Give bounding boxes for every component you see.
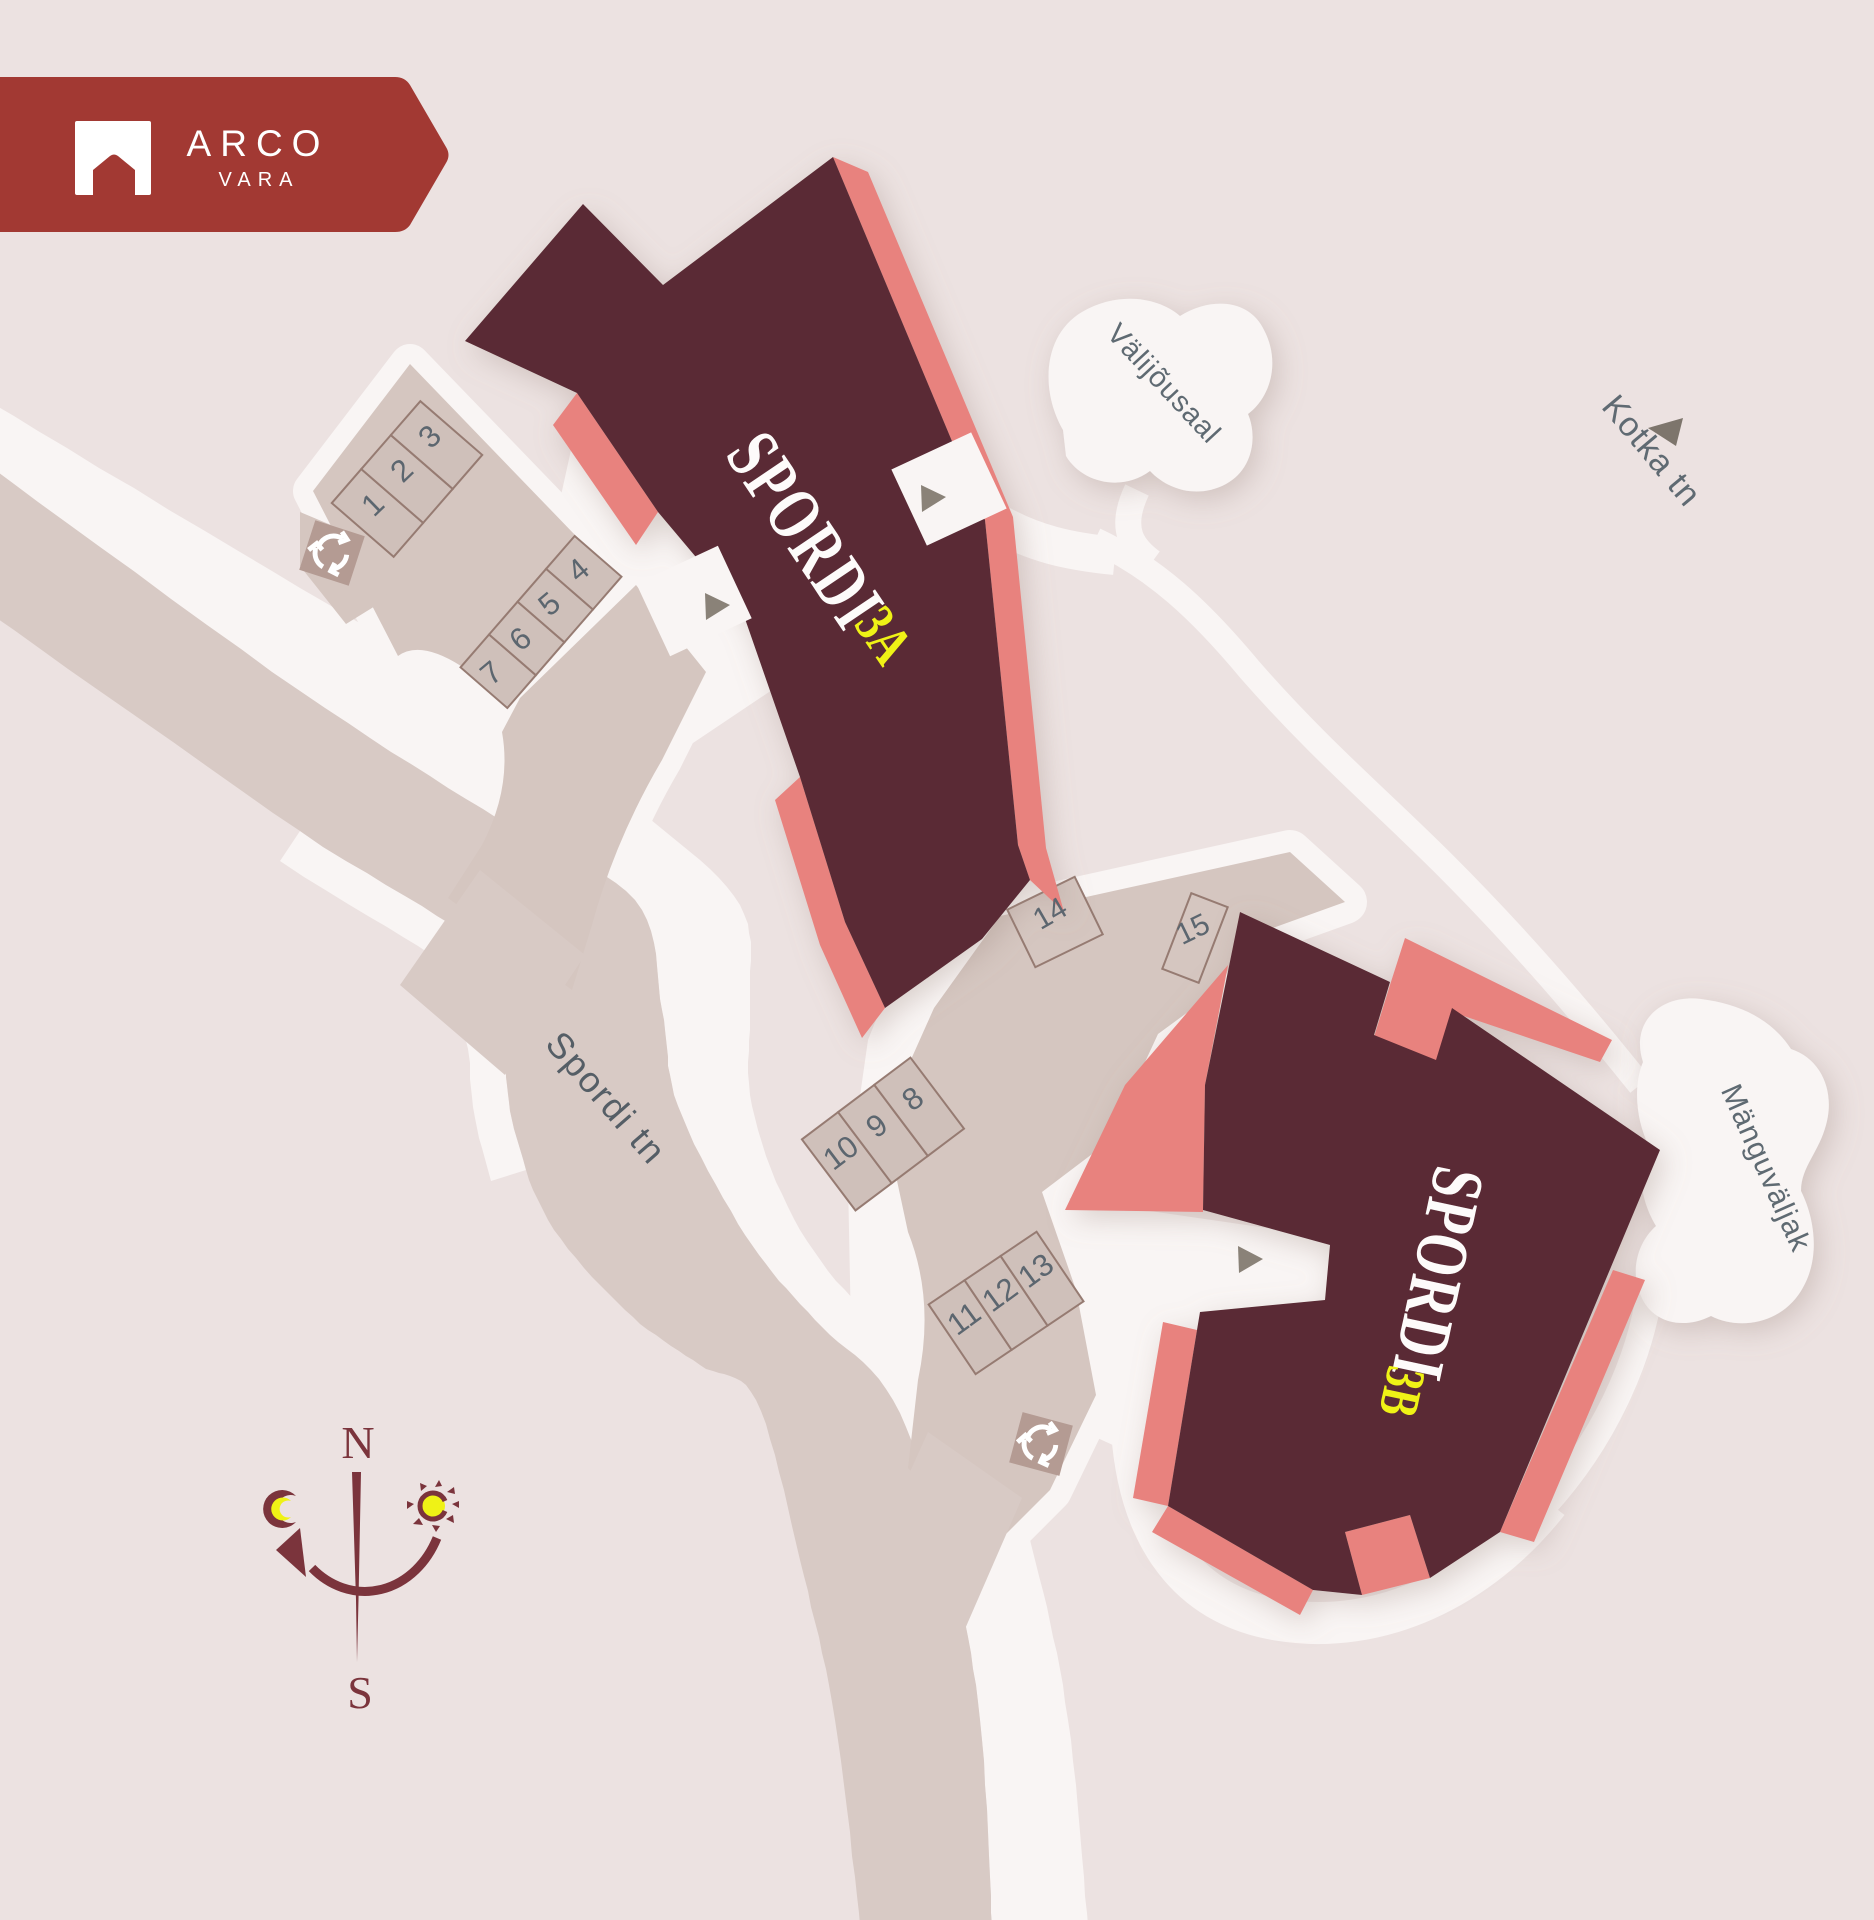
- svg-text:VARA: VARA: [219, 169, 300, 191]
- svg-text:ARCO: ARCO: [187, 123, 330, 164]
- svg-text:N: N: [341, 1417, 374, 1468]
- svg-text:S: S: [347, 1667, 373, 1718]
